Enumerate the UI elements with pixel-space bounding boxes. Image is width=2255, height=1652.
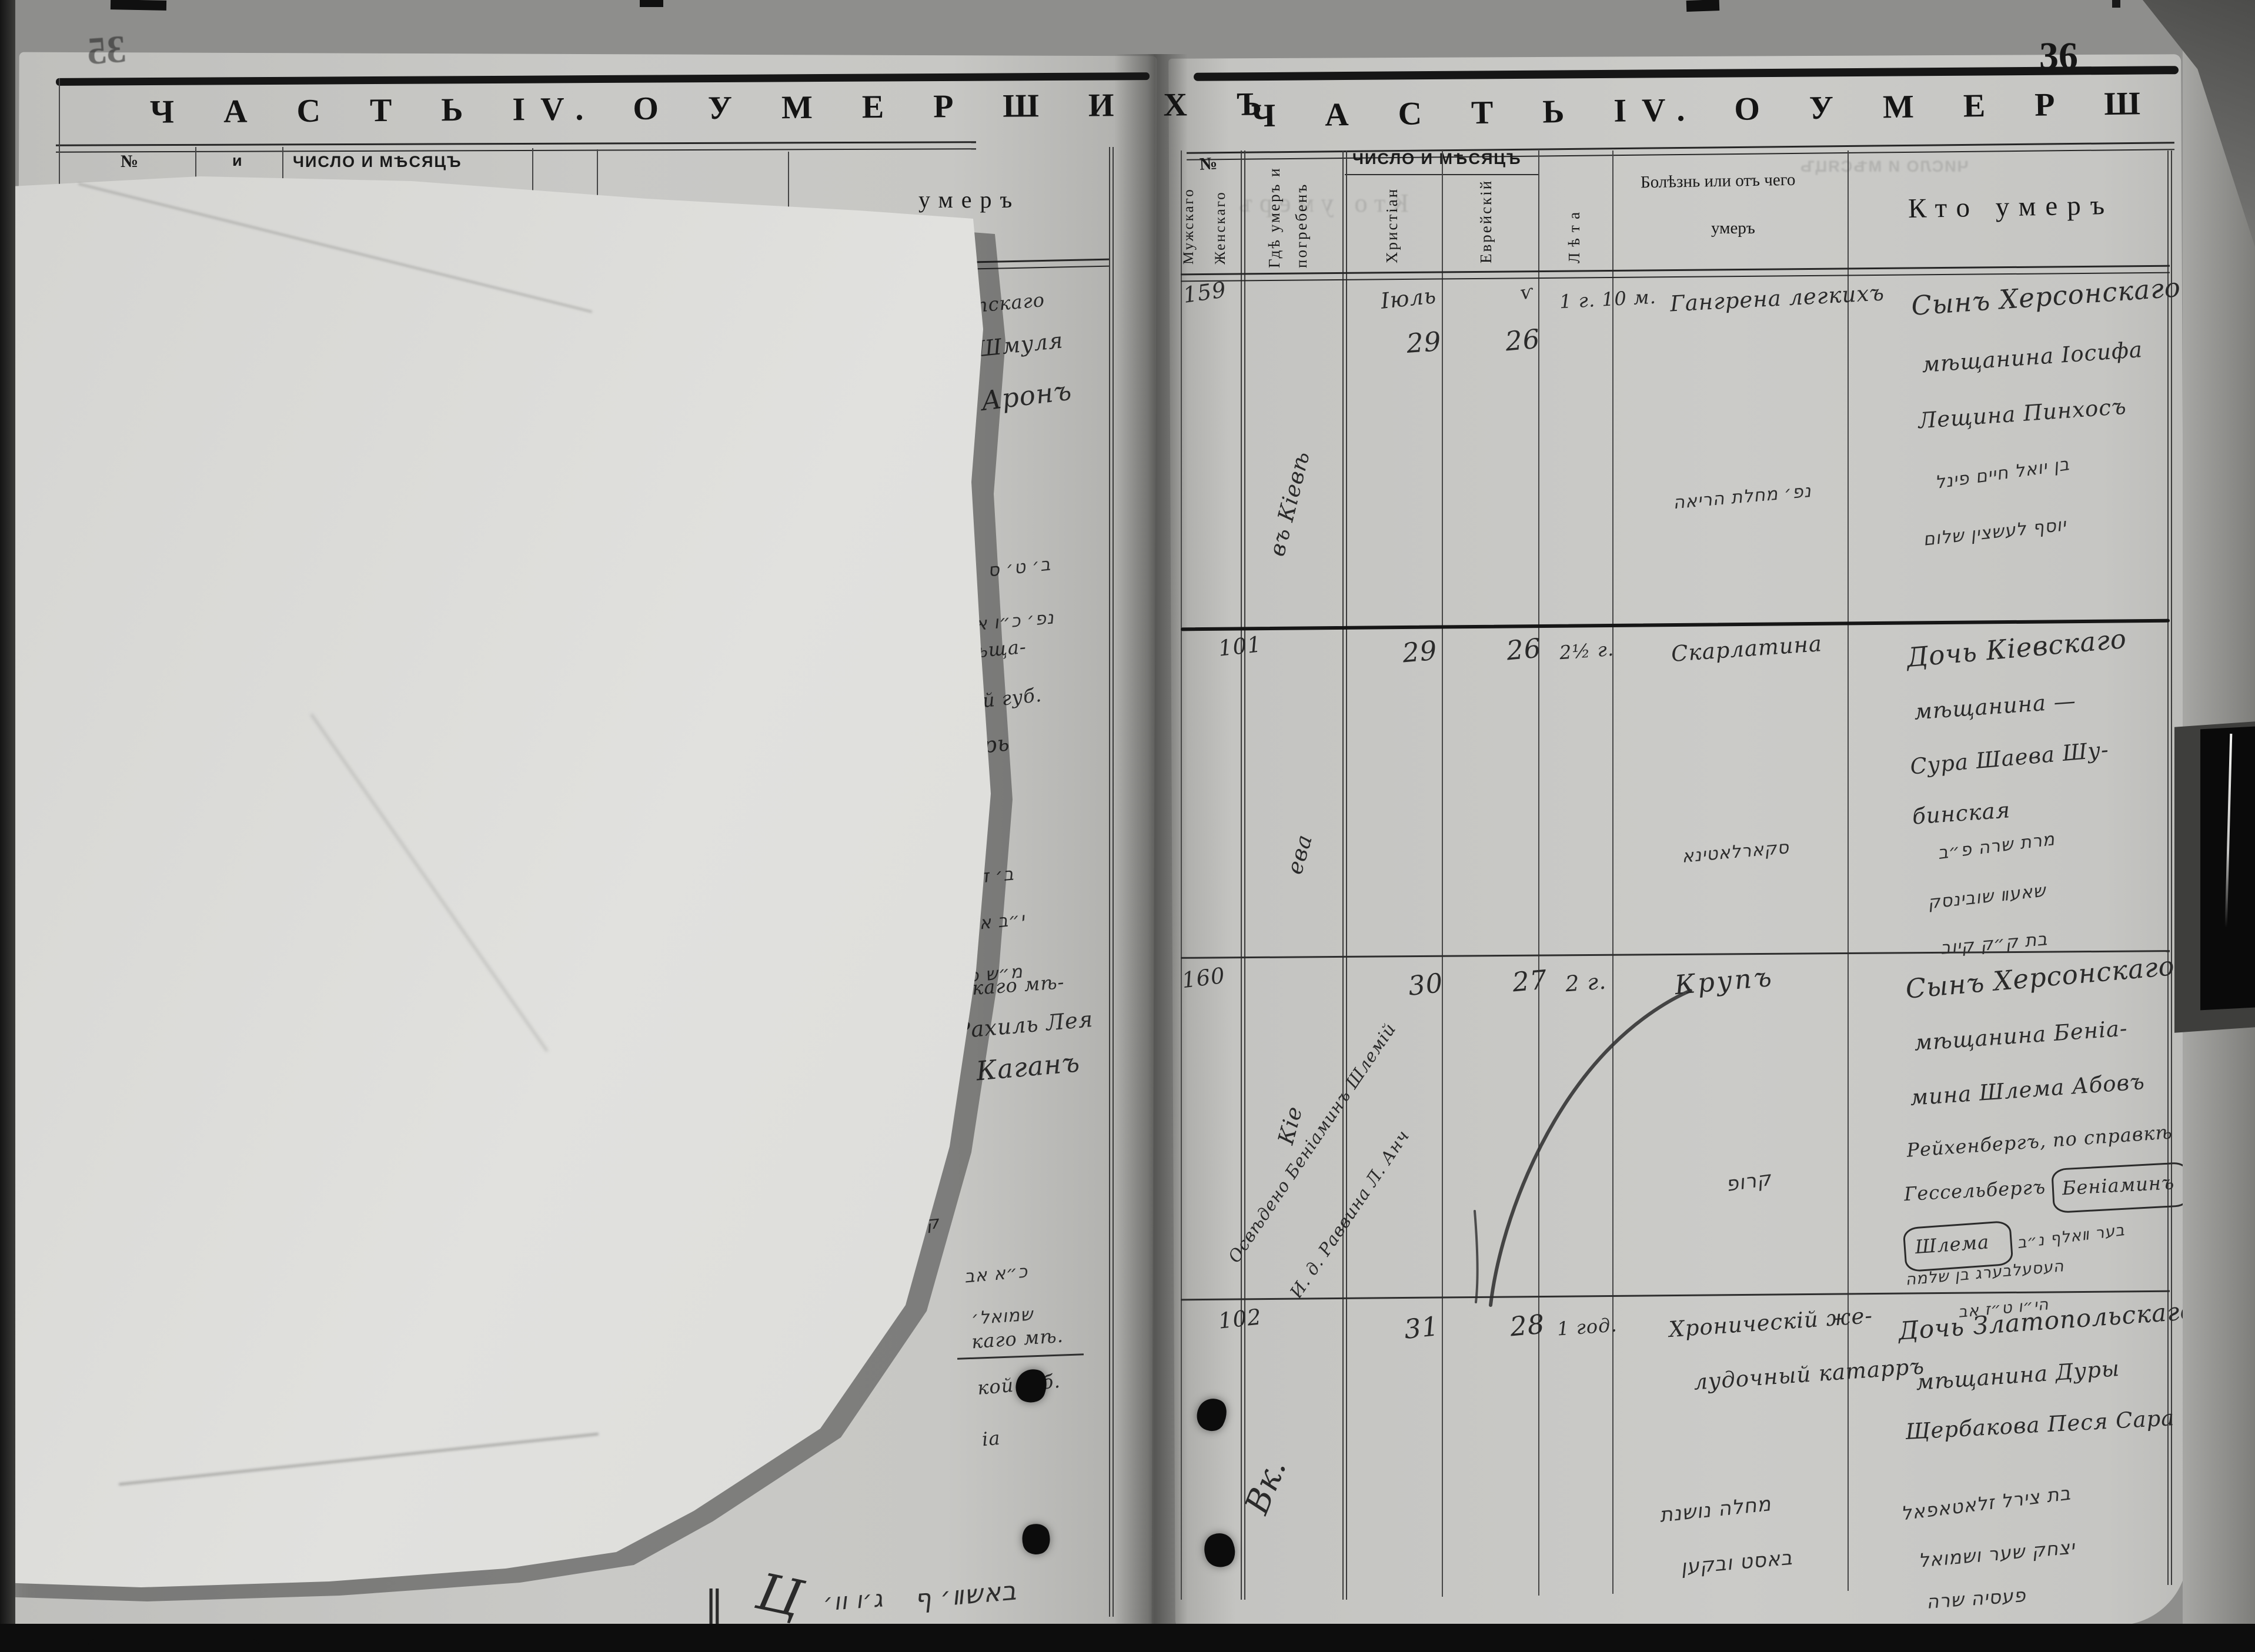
date-christian-day: 31 (1402, 1310, 1440, 1345)
left-col-no: № (121, 152, 139, 172)
row-number-male: 160 (1181, 963, 1227, 994)
ghost-text: ЧИСЛО И МѢСЯЦЪ (1799, 158, 1969, 176)
left-page-title: Ч А С Т Ь IV. О У М Е Р Ш И Х Ъ (150, 85, 1277, 131)
date-jewish-day: 26 (1504, 323, 1542, 357)
left-edge-strip (0, 0, 15, 1652)
age-value: 2½ г. (1559, 638, 1615, 664)
left-col-line-5 (788, 152, 789, 210)
left-entry-line: іа (981, 1427, 1001, 1451)
table-line (1442, 151, 1443, 1597)
bottom-mark-bar: ‖ (704, 1583, 727, 1628)
table-line (2167, 151, 2169, 1585)
left-border-line (59, 78, 60, 190)
right-col-where-1: Гдѣ умеръ и (1265, 174, 1284, 268)
date-christian-day: 29 (1405, 326, 1442, 359)
correction-oval: Беніаминъ (2051, 1162, 2191, 1213)
top-edge-mark (1686, 0, 1720, 12)
right-col-age: Лѣта (1565, 181, 1583, 263)
right-col-date-christian: Христіан (1383, 181, 1401, 263)
right-col-cause-2: умеръ (1711, 219, 1755, 238)
top-edge-mark (640, 0, 663, 7)
bottom-left-black-wedge (88, 1639, 259, 1652)
left-col-line-3 (532, 148, 533, 195)
left-col-where-fragment: и (232, 152, 243, 170)
right-col-date-main: ЧИСЛО И МѢСЯЦЪ (1352, 150, 1522, 168)
ghost-text: Кто умеръ (1232, 188, 1409, 218)
table-line (1538, 151, 1539, 1596)
left-page-number: 35 (85, 27, 127, 74)
row-number-female: 102 (1217, 1304, 1263, 1333)
book-scan-canvas: Ч А С Т Ь IV. О У М Е Р Ш И Х Ъ 35 № и Ч… (0, 0, 2255, 1652)
gutter-shadow (1114, 54, 1188, 1633)
top-edge-mark (2112, 0, 2120, 8)
left-col-who-fragment: умеръ (918, 186, 1020, 213)
age-value: 1 год. (1556, 1313, 1618, 1340)
who-boxed-name: Беніаминъ (2062, 1171, 2175, 1199)
left-col-line-4 (597, 149, 598, 201)
top-edge-mark (111, 0, 166, 11)
right-col-where-2: погребенъ (1292, 174, 1311, 268)
left-right-border (1109, 147, 1110, 1617)
date-christian-day: 29 (1401, 635, 1439, 669)
left-col-date: ЧИСЛО И МѢСЯЦЪ (293, 153, 462, 171)
pen-stroke (1435, 976, 1717, 1317)
bottom-mark-hebrew: ג׳ו וו׳ (823, 1585, 884, 1616)
right-col-no-male: Мужскаго (1181, 176, 1197, 265)
row-number-female: 101 (1217, 631, 1263, 661)
right-col-who: Кто умеръ (1908, 189, 2114, 225)
date-jewish-day: 28 (1509, 1309, 1546, 1343)
right-page-number: 36 (2039, 34, 2078, 79)
table-line (1342, 151, 1344, 1600)
date-jewish-day: 26 (1505, 633, 1543, 667)
table-line (1241, 151, 1242, 1600)
who-boxed-name: Шлема (1915, 1230, 1990, 1258)
right-col-cause-1: Болѣзнь или отъ чего (1641, 170, 1796, 193)
right-col-no: № (1199, 153, 1219, 175)
table-line (1181, 151, 1182, 1600)
right-col-no-female: Женскаго (1212, 176, 1229, 265)
bottom-black-band (0, 1624, 2255, 1652)
table-line (1612, 151, 1613, 1594)
left-entry-hebrew-line: שמואל׳ (971, 1304, 1034, 1329)
right-col-date-jewish: Еврейскій (1477, 181, 1495, 263)
